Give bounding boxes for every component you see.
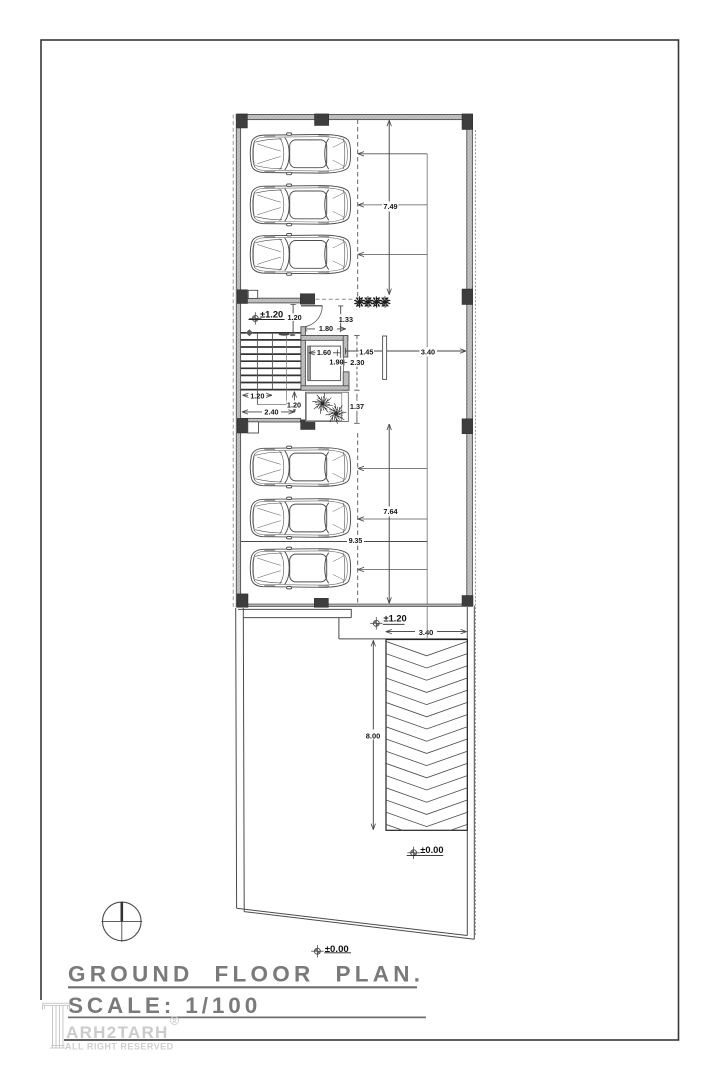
svg-text:9.35: 9.35	[349, 538, 363, 545]
svg-text:8.00: 8.00	[366, 731, 381, 740]
svg-text:±1.20: ±1.20	[384, 614, 407, 624]
svg-text:1.33: 1.33	[339, 315, 353, 324]
svg-text:1.60: 1.60	[317, 348, 331, 357]
svg-text:±1.20: ±1.20	[260, 310, 283, 320]
svg-text:7.64: 7.64	[383, 507, 398, 516]
svg-text:1.80: 1.80	[319, 324, 333, 333]
svg-text:1.20: 1.20	[250, 391, 264, 400]
svg-text:1.20: 1.20	[287, 313, 301, 322]
svg-text:1.45: 1.45	[359, 348, 373, 357]
svg-text:3.40: 3.40	[421, 348, 435, 357]
svg-text:2.40: 2.40	[264, 408, 278, 417]
svg-text:SCALE: 1/100: SCALE: 1/100	[68, 993, 261, 1018]
svg-text:1.20: 1.20	[287, 401, 301, 410]
svg-text:R: R	[173, 1019, 177, 1025]
svg-text:±0.00: ±0.00	[420, 845, 443, 855]
svg-text:GROUND FLOOR PLAN.: GROUND FLOOR PLAN.	[68, 962, 424, 987]
svg-text:1.37: 1.37	[350, 402, 364, 411]
svg-text:ARH2TARH: ARH2TARH	[66, 1023, 169, 1042]
svg-text:3.40: 3.40	[419, 628, 434, 637]
svg-text:2.30: 2.30	[350, 358, 364, 367]
svg-text:7.49: 7.49	[383, 202, 397, 211]
svg-text:ALL RIGHT RESERVED: ALL RIGHT RESERVED	[65, 1041, 174, 1051]
